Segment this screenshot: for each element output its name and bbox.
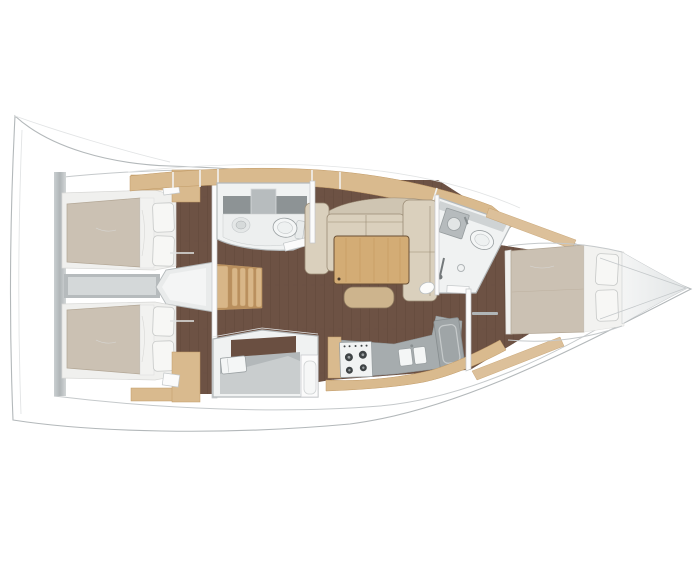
cabin-door xyxy=(162,373,180,387)
door-handle xyxy=(472,312,498,315)
pillow xyxy=(152,236,174,267)
mirror-cabinet xyxy=(251,189,276,215)
head-upper xyxy=(217,183,311,251)
counter-end-cheek xyxy=(328,337,341,378)
pillow xyxy=(595,253,619,285)
bed-linen xyxy=(140,305,154,375)
sofa-arm-cushion xyxy=(305,203,329,274)
pillow xyxy=(152,341,174,372)
anchor-locker xyxy=(622,252,688,324)
stool xyxy=(344,287,394,308)
floor-plan-canvas xyxy=(0,0,700,576)
aft-cabin-lower xyxy=(62,302,176,380)
bed-linen xyxy=(140,198,154,268)
table-leg-mark xyxy=(338,278,341,281)
wardrobe-shelf xyxy=(131,388,174,401)
door-wall xyxy=(466,289,471,371)
pillow xyxy=(152,203,174,233)
stove xyxy=(339,341,372,377)
head-lower xyxy=(212,328,318,397)
aft-cabin-upper xyxy=(62,190,176,270)
washbasin xyxy=(220,356,247,375)
yacht-floor-plan xyxy=(0,0,700,576)
salon-table xyxy=(334,236,409,284)
double-berth-mattress xyxy=(67,198,140,267)
head-partition-wall xyxy=(435,195,439,295)
double-berth-mattress xyxy=(67,305,140,374)
head-partition-wall xyxy=(310,181,315,243)
